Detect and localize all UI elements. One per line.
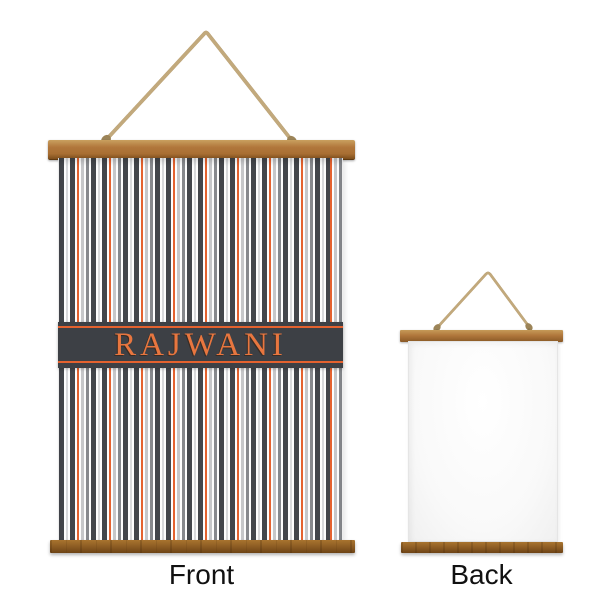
name-band: RAJWANI <box>58 322 343 368</box>
front-view-label: Front <box>48 559 355 591</box>
front-rope <box>99 33 299 154</box>
personalization-text: RAJWANI <box>58 322 343 368</box>
product-mockup: RAJWANI Front Back <box>0 0 600 600</box>
back-blank-canvas <box>408 341 558 542</box>
front-striped-fabric: RAJWANI <box>58 158 343 541</box>
back-view-label: Back <box>400 559 563 591</box>
front-top-wood-bar <box>48 140 355 160</box>
front-bottom-wood-bar <box>50 540 355 553</box>
back-rope <box>432 273 534 337</box>
back-bottom-wood-bar <box>401 542 563 553</box>
